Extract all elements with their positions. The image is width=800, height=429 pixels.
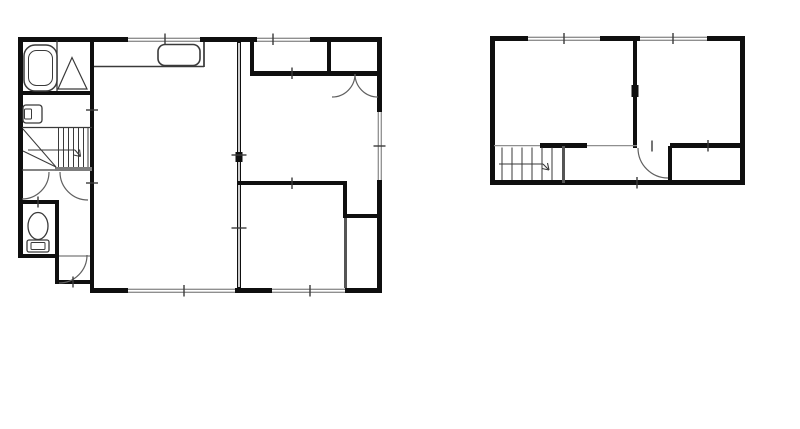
first-floor-plan (18, 34, 386, 297)
stair-landing-edge (55, 167, 92, 171)
duct-wall (250, 39, 254, 75)
top-wall-west (18, 37, 128, 42)
entrance-side-wall (55, 254, 59, 284)
toilet-tank-inner (31, 243, 45, 250)
top-wall-mid (200, 37, 257, 42)
bottom-wall (490, 180, 745, 185)
hall-door-arc (638, 148, 668, 178)
washroom-door-arc (22, 172, 49, 199)
top-wall-mid (600, 36, 640, 41)
top-wall-east (707, 36, 745, 41)
right-wall (740, 36, 745, 185)
right-wall-lower (377, 180, 382, 293)
left-wall (18, 37, 23, 258)
storage-top-wall (670, 143, 741, 148)
bottom-wall-east (345, 288, 382, 293)
closet2-bottom-wall (343, 214, 382, 218)
left-wall (490, 36, 495, 185)
partition-door-jamb (236, 152, 243, 162)
second-floor-plan (490, 33, 745, 189)
closet-double-door-arc-left (332, 74, 355, 97)
stair-winder-line (23, 129, 56, 167)
closet-divider-wall (327, 41, 331, 74)
service-column-wall (90, 37, 94, 288)
toilet-side-wall (55, 200, 59, 258)
center-partition-core (238, 43, 240, 287)
toilet-bowl (28, 213, 48, 240)
toilet-bottom-wall (18, 254, 58, 258)
counter-end-wall (203, 42, 205, 67)
closet-double-door-arc-right (355, 74, 378, 97)
kitchen-sink (158, 45, 200, 66)
stair-side-edge (562, 146, 565, 183)
hallway-door-arc (60, 172, 88, 200)
floor-plan-document (0, 0, 800, 429)
storage-side-wall (668, 146, 672, 183)
divider-door-jamb (632, 85, 639, 97)
closet-front-wall (250, 71, 382, 76)
top-wall-east (310, 37, 382, 42)
closet2-side-wall (343, 181, 347, 218)
top-wall-west (490, 36, 528, 41)
washbasin-bowl (25, 109, 32, 119)
bottom-wall-west (90, 288, 128, 293)
stair-winder-line (23, 151, 56, 167)
bathroom-bottom-wall (18, 91, 94, 95)
alcove-side-wall (344, 218, 347, 288)
shower-pan (58, 58, 87, 90)
bathtub-inner (29, 51, 53, 86)
floor-plan-canvas (0, 0, 800, 429)
bottom-wall-mid (235, 288, 272, 293)
